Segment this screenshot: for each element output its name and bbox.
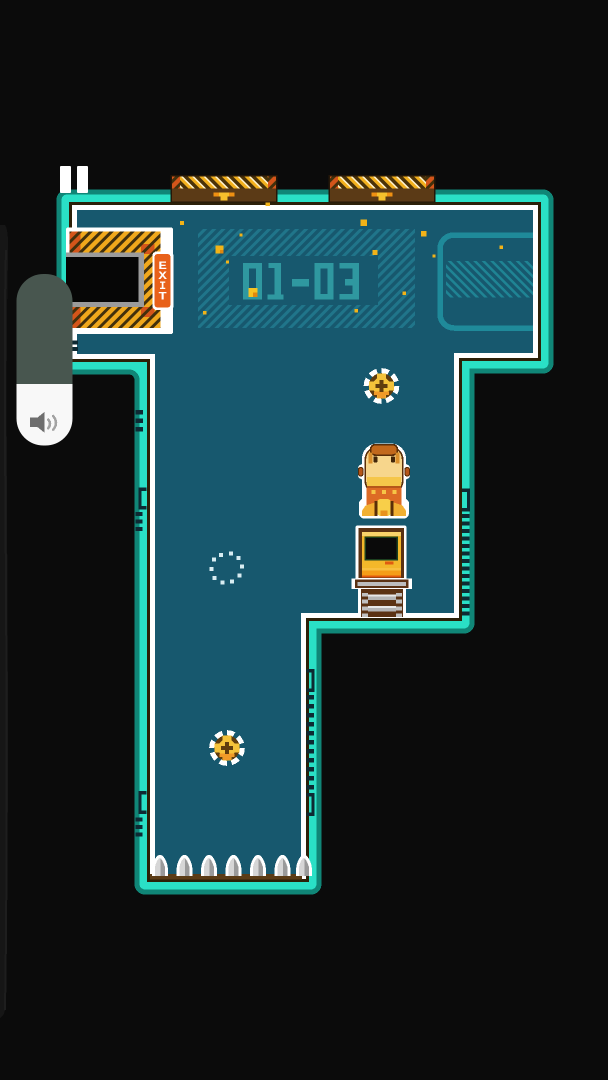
svg-text:T: T [158,292,167,304]
